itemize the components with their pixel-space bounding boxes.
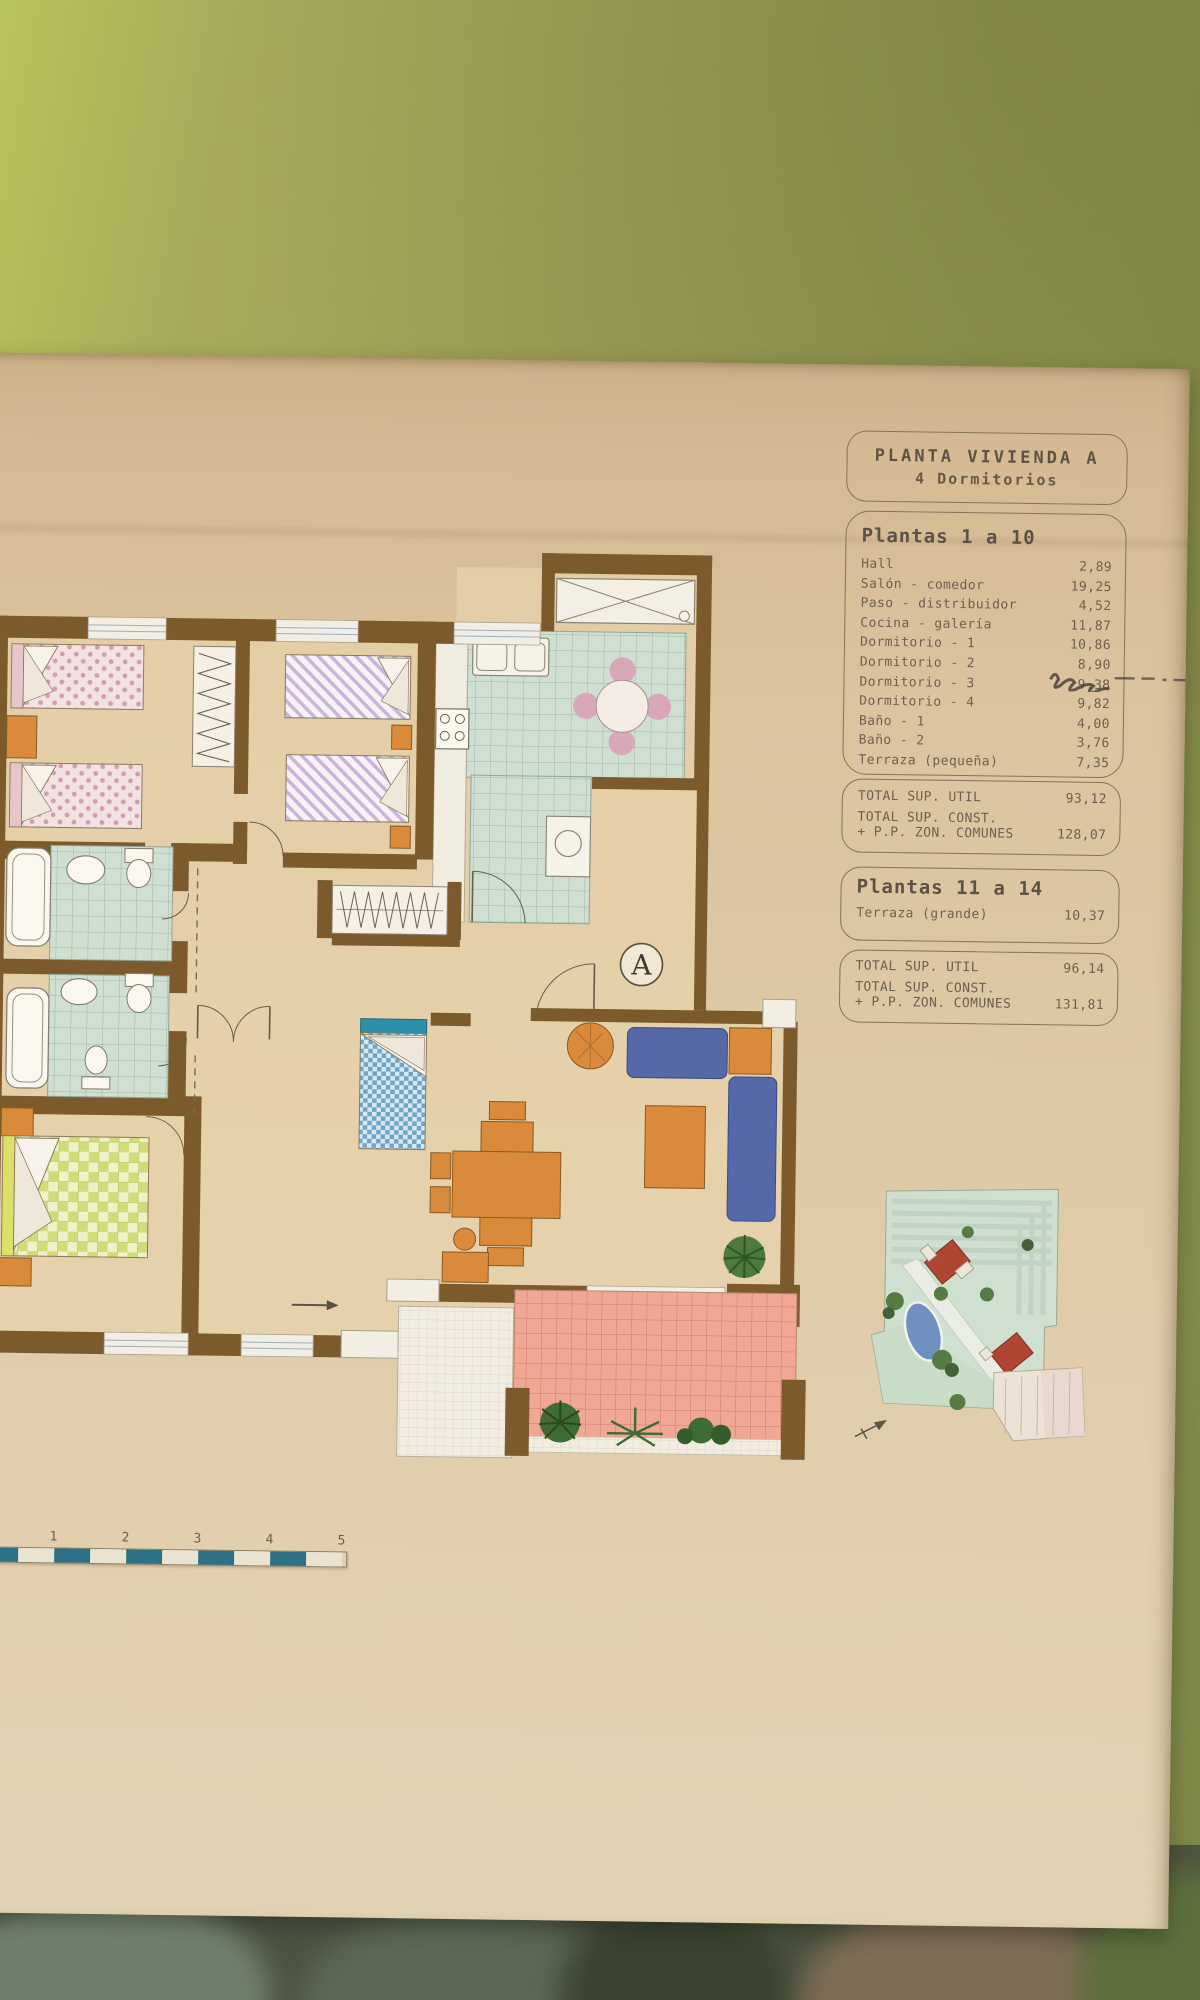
bed — [359, 1019, 427, 1150]
washing-machine — [546, 816, 591, 877]
coffee-table — [644, 1106, 705, 1189]
site-plan — [845, 1172, 1089, 1455]
photo-of-floorplan-poster: A — [0, 0, 1200, 2000]
bed — [285, 755, 409, 823]
section-heading: Plantas 1 a 10 — [846, 511, 1125, 550]
hall-closet — [332, 885, 448, 935]
bed — [11, 644, 144, 710]
nightstand — [391, 725, 411, 749]
nightstand — [6, 716, 37, 758]
scale-segments — [0, 1546, 347, 1567]
floor-plan: A — [0, 531, 837, 1483]
plan-title-box: PLANTA VIVIENDA A 4 Dormitorios — [846, 430, 1128, 505]
total-util-row: TOTAL SUP. UTIL 93,12 — [858, 789, 1107, 807]
total-const-row: TOTAL SUP. CONST. + P.P. ZON. COMUNES 12… — [857, 810, 1106, 843]
room-area-row: Terraza (grande) 10,37 — [856, 904, 1105, 927]
parking — [993, 1367, 1086, 1442]
nightstand — [1, 1108, 33, 1136]
bathroom-1 — [6, 845, 190, 962]
areas-box-plantas-11-14: Plantas 11 a 14 Terraza (grande) 10,37 — [840, 866, 1120, 944]
toilet — [125, 973, 154, 1012]
unit-marker: A — [620, 943, 663, 986]
pillar — [781, 1380, 806, 1460]
wardrobe — [192, 646, 236, 767]
total-util-row: TOTAL SUP. UTIL 96,14 — [855, 959, 1104, 977]
nightstand — [390, 826, 410, 848]
sofa — [727, 1077, 777, 1222]
bed — [1, 1136, 149, 1258]
room-area-row: Terraza (pequeña)7,35 — [858, 751, 1109, 774]
nightstand — [0, 1258, 31, 1286]
bathroom-2 — [6, 972, 188, 1099]
total-const-row: TOTAL SUP. CONST. + P.P. ZON. COMUNES 13… — [855, 980, 1104, 1013]
drying-rack — [556, 578, 695, 624]
areas-box-plantas-1-10: Plantas 1 a 10 Hall2,89 Salón - comedor1… — [842, 510, 1127, 778]
sofa — [627, 1027, 728, 1078]
sink — [67, 856, 105, 885]
scale-bar: 0 1 2 3 4 5 — [0, 1528, 348, 1571]
sink — [61, 978, 97, 1005]
north-arrow — [855, 1421, 885, 1439]
terrace — [397, 1288, 807, 1462]
pillar — [505, 1388, 530, 1456]
room-area-list: Hall2,89 Salón - comedor19,25 Paso - dis… — [843, 546, 1125, 773]
plan-subtitle: 4 Dormitorios — [915, 469, 1059, 489]
plan-title: PLANTA VIVIENDA A — [875, 446, 1100, 469]
stove — [436, 709, 470, 749]
section-heading: Plantas 11 a 14 — [841, 867, 1118, 901]
toilet — [125, 848, 154, 887]
bed — [285, 655, 411, 720]
bedroom-blue-single — [359, 1019, 427, 1150]
svg-text:A: A — [630, 948, 652, 981]
totals-box-plantas-11-14: TOTAL SUP. UTIL 96,14 TOTAL SUP. CONST. … — [839, 949, 1119, 1026]
scale-numbers: 0 1 2 3 4 5 — [0, 1528, 348, 1549]
corner-table — [729, 1028, 772, 1075]
bed — [9, 763, 142, 829]
floorplan-poster: A — [0, 352, 1190, 1929]
totals-box-plantas-1-10: TOTAL SUP. UTIL 93,12 TOTAL SUP. CONST. … — [841, 778, 1121, 856]
